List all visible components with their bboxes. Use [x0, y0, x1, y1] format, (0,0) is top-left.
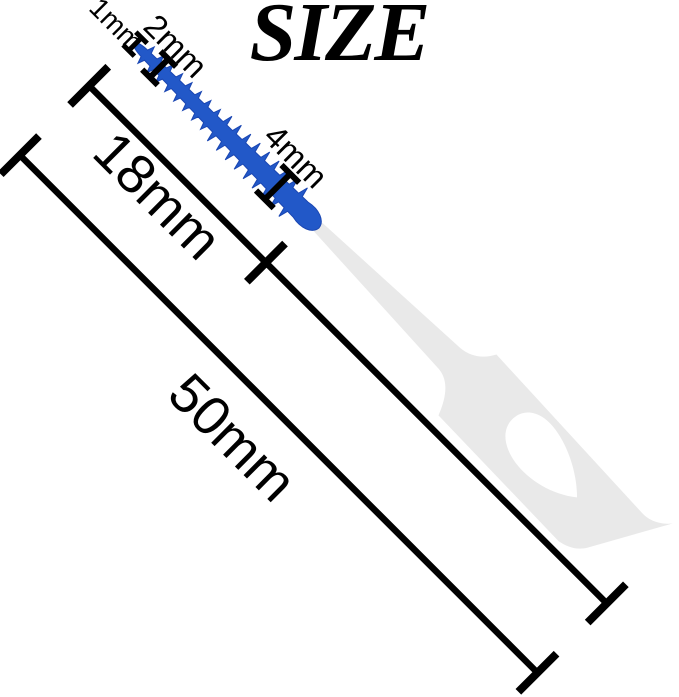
total-length-label: 50mm — [157, 361, 309, 513]
page-title: SIZE — [250, 0, 429, 79]
size-diagram: SIZE 1mm 2mm — [0, 0, 679, 697]
size-diagram-page: SIZE 1mm 2mm — [0, 0, 679, 697]
handle — [278, 195, 672, 589]
brush-length-label: 18mm — [82, 119, 234, 271]
